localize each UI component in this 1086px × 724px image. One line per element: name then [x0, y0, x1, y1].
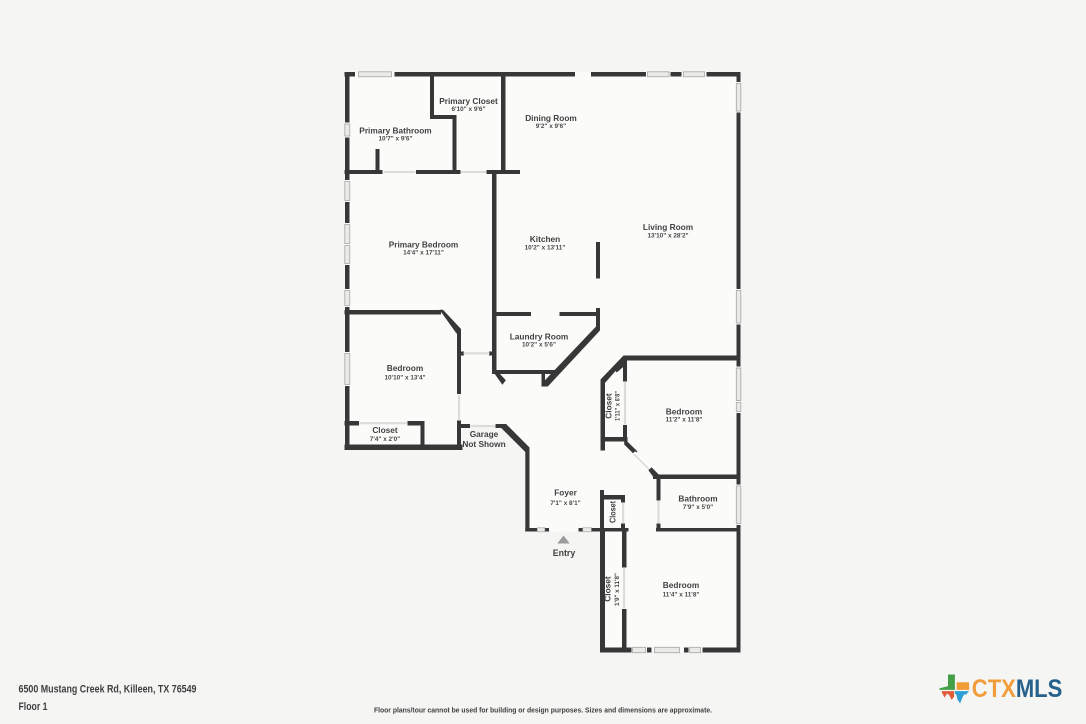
svg-text:7'9" x 5'0": 7'9" x 5'0" — [683, 504, 713, 511]
svg-text:1'11" x 6'8": 1'11" x 6'8" — [615, 391, 622, 421]
svg-text:Closet: Closet — [608, 501, 618, 523]
svg-text:Floor 1: Floor 1 — [19, 701, 48, 713]
svg-text:10'2" x 13'11": 10'2" x 13'11" — [525, 245, 566, 252]
svg-text:10'10" x 13'4": 10'10" x 13'4" — [384, 375, 425, 382]
svg-text:7'4" x 2'0": 7'4" x 2'0" — [370, 436, 400, 443]
svg-text:Closet: Closet — [603, 576, 613, 602]
svg-text:11'2" x 11'8": 11'2" x 11'8" — [666, 417, 703, 424]
svg-text:10'7" x 9'6": 10'7" x 9'6" — [379, 136, 413, 143]
svg-text:11'4" x 11'8": 11'4" x 11'8" — [663, 592, 700, 599]
svg-text:Floor plans/tour cannot be use: Floor plans/tour cannot be used for buil… — [374, 706, 712, 715]
svg-text:10'2" x 5'6": 10'2" x 5'6" — [522, 342, 556, 349]
svg-text:Living Room: Living Room — [643, 222, 693, 232]
svg-text:CTXMLS: CTXMLS — [972, 675, 1062, 703]
svg-text:Bedroom: Bedroom — [387, 363, 423, 373]
svg-text:Primary Bathroom: Primary Bathroom — [359, 126, 431, 136]
svg-text:7'1" x 8'1": 7'1" x 8'1" — [550, 500, 580, 507]
svg-text:Primary Closet: Primary Closet — [439, 96, 498, 106]
svg-text:Bedroom: Bedroom — [663, 580, 699, 590]
svg-text:Kitchen: Kitchen — [530, 234, 560, 244]
svg-text:6500 Mustang Creek Rd, Killeen: 6500 Mustang Creek Rd, Killeen, TX 76549 — [19, 684, 197, 696]
svg-text:Closet: Closet — [372, 425, 398, 435]
svg-text:Dining Room: Dining Room — [525, 113, 577, 123]
svg-text:Bathroom: Bathroom — [678, 494, 717, 504]
svg-text:Primary Bedroom: Primary Bedroom — [389, 240, 459, 250]
svg-text:Bedroom: Bedroom — [666, 407, 702, 417]
svg-text:Laundry Room: Laundry Room — [510, 332, 569, 342]
svg-text:14'4" x 17'11": 14'4" x 17'11" — [403, 250, 444, 257]
svg-text:Closet: Closet — [604, 393, 614, 419]
svg-text:Garage: Garage — [470, 429, 499, 439]
svg-text:6'10" x 9'6": 6'10" x 9'6" — [452, 106, 486, 113]
svg-text:Entry: Entry — [553, 548, 576, 558]
svg-text:9'2" x 9'6": 9'2" x 9'6" — [536, 123, 566, 130]
svg-text:Foyer: Foyer — [554, 488, 577, 498]
svg-text:13'10" x 28'2": 13'10" x 28'2" — [647, 233, 688, 240]
svg-text:Not Shown: Not Shown — [462, 439, 505, 449]
svg-text:1'9" x 11'8": 1'9" x 11'8" — [614, 573, 621, 606]
